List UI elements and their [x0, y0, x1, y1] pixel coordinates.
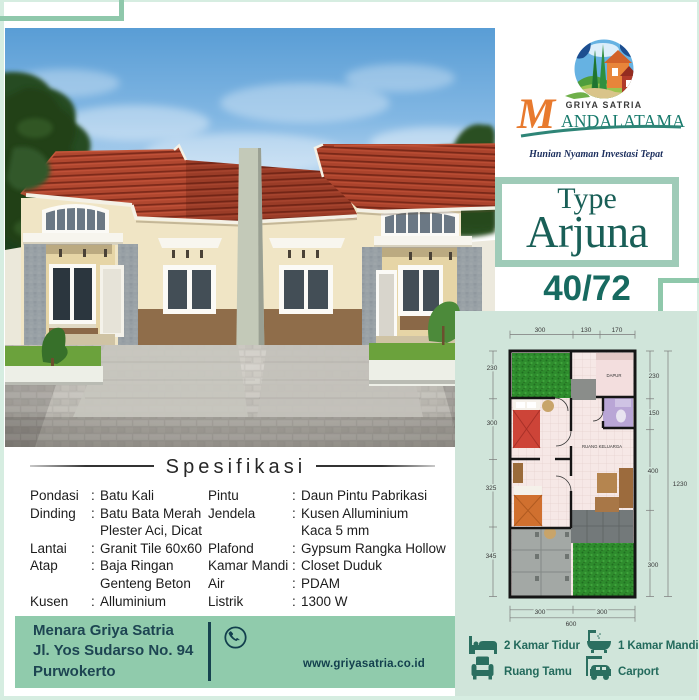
svg-text:300: 300: [535, 327, 546, 334]
svg-text:150: 150: [649, 410, 660, 417]
svg-text:130: 130: [581, 327, 592, 334]
svg-text:230: 230: [649, 373, 660, 380]
svg-text:1230: 1230: [673, 481, 688, 488]
svg-text:325: 325: [486, 485, 497, 492]
svg-text:RUANG KELUARGA: RUANG KELUARGA: [582, 444, 622, 449]
svg-text:170: 170: [612, 327, 623, 334]
svg-text:300: 300: [487, 420, 498, 427]
svg-text:DAPUR: DAPUR: [606, 373, 621, 378]
svg-text:Hunian Nyaman Investasi Tepat: Hunian Nyaman Investasi Tepat: [528, 149, 664, 160]
svg-text:400: 400: [648, 468, 659, 475]
svg-text:GRIYA SATRIA: GRIYA SATRIA: [566, 100, 643, 110]
svg-text:345: 345: [486, 553, 497, 560]
svg-text:300: 300: [648, 562, 659, 569]
svg-text:300: 300: [597, 609, 608, 616]
svg-text:600: 600: [566, 621, 577, 628]
svg-text:300: 300: [535, 609, 546, 616]
svg-text:230: 230: [487, 365, 498, 372]
